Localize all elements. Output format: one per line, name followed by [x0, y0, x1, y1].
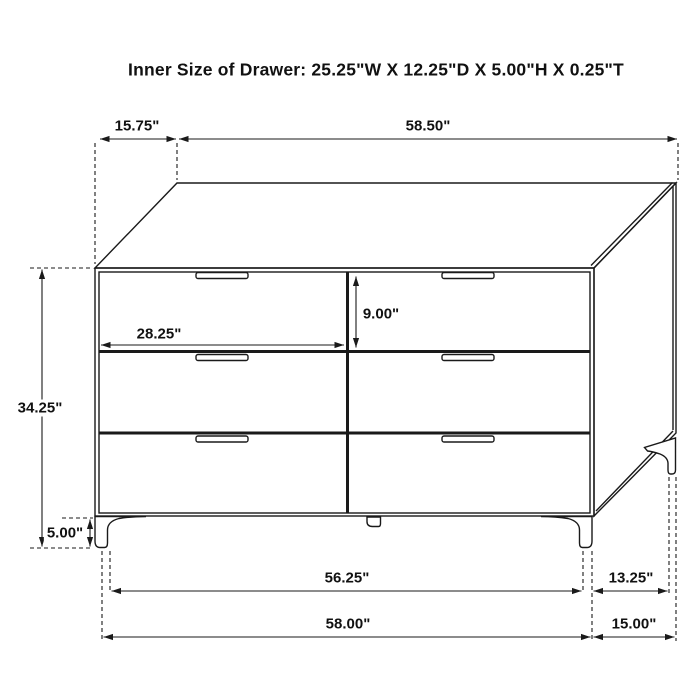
- dim-label-drawer-width: 28.25": [134, 326, 185, 343]
- front-right-leg: [541, 517, 592, 548]
- dresser-top: [95, 183, 676, 269]
- dim-label-body-height: 34.25": [15, 400, 66, 417]
- dresser-side-panel: [594, 183, 676, 516]
- dim-label-leg-height: 5.00": [44, 525, 86, 542]
- drawer-handles: [196, 273, 494, 443]
- dim-label-top-depth: 15.75": [112, 118, 163, 135]
- dim-label-front-leg-span: 56.25": [322, 570, 373, 587]
- handle-top-left: [196, 273, 248, 279]
- center-foot: [367, 517, 381, 527]
- dimension-drawing: Inner Size of Drawer: 25.25"W X 12.25"D …: [0, 0, 700, 700]
- handle-middle-right: [442, 355, 494, 361]
- dim-label-overall-width: 58.00": [323, 616, 374, 633]
- handle-bottom-right: [442, 436, 494, 442]
- handle-middle-left: [196, 355, 248, 361]
- handle-top-right: [442, 273, 494, 279]
- dim-label-overall-depth: 15.00": [609, 616, 660, 633]
- dim-label-top-width: 58.50": [403, 118, 454, 135]
- handle-bottom-left: [196, 436, 248, 442]
- dresser-front-face: [95, 268, 594, 516]
- dresser-legs: [95, 438, 676, 548]
- dim-label-drawer-opening-height: 9.00": [360, 306, 402, 323]
- front-left-leg: [95, 517, 146, 548]
- dimension-lines: [30, 139, 678, 641]
- dim-label-side-leg-span: 13.25": [606, 570, 657, 587]
- dresser-diagram: [0, 0, 700, 700]
